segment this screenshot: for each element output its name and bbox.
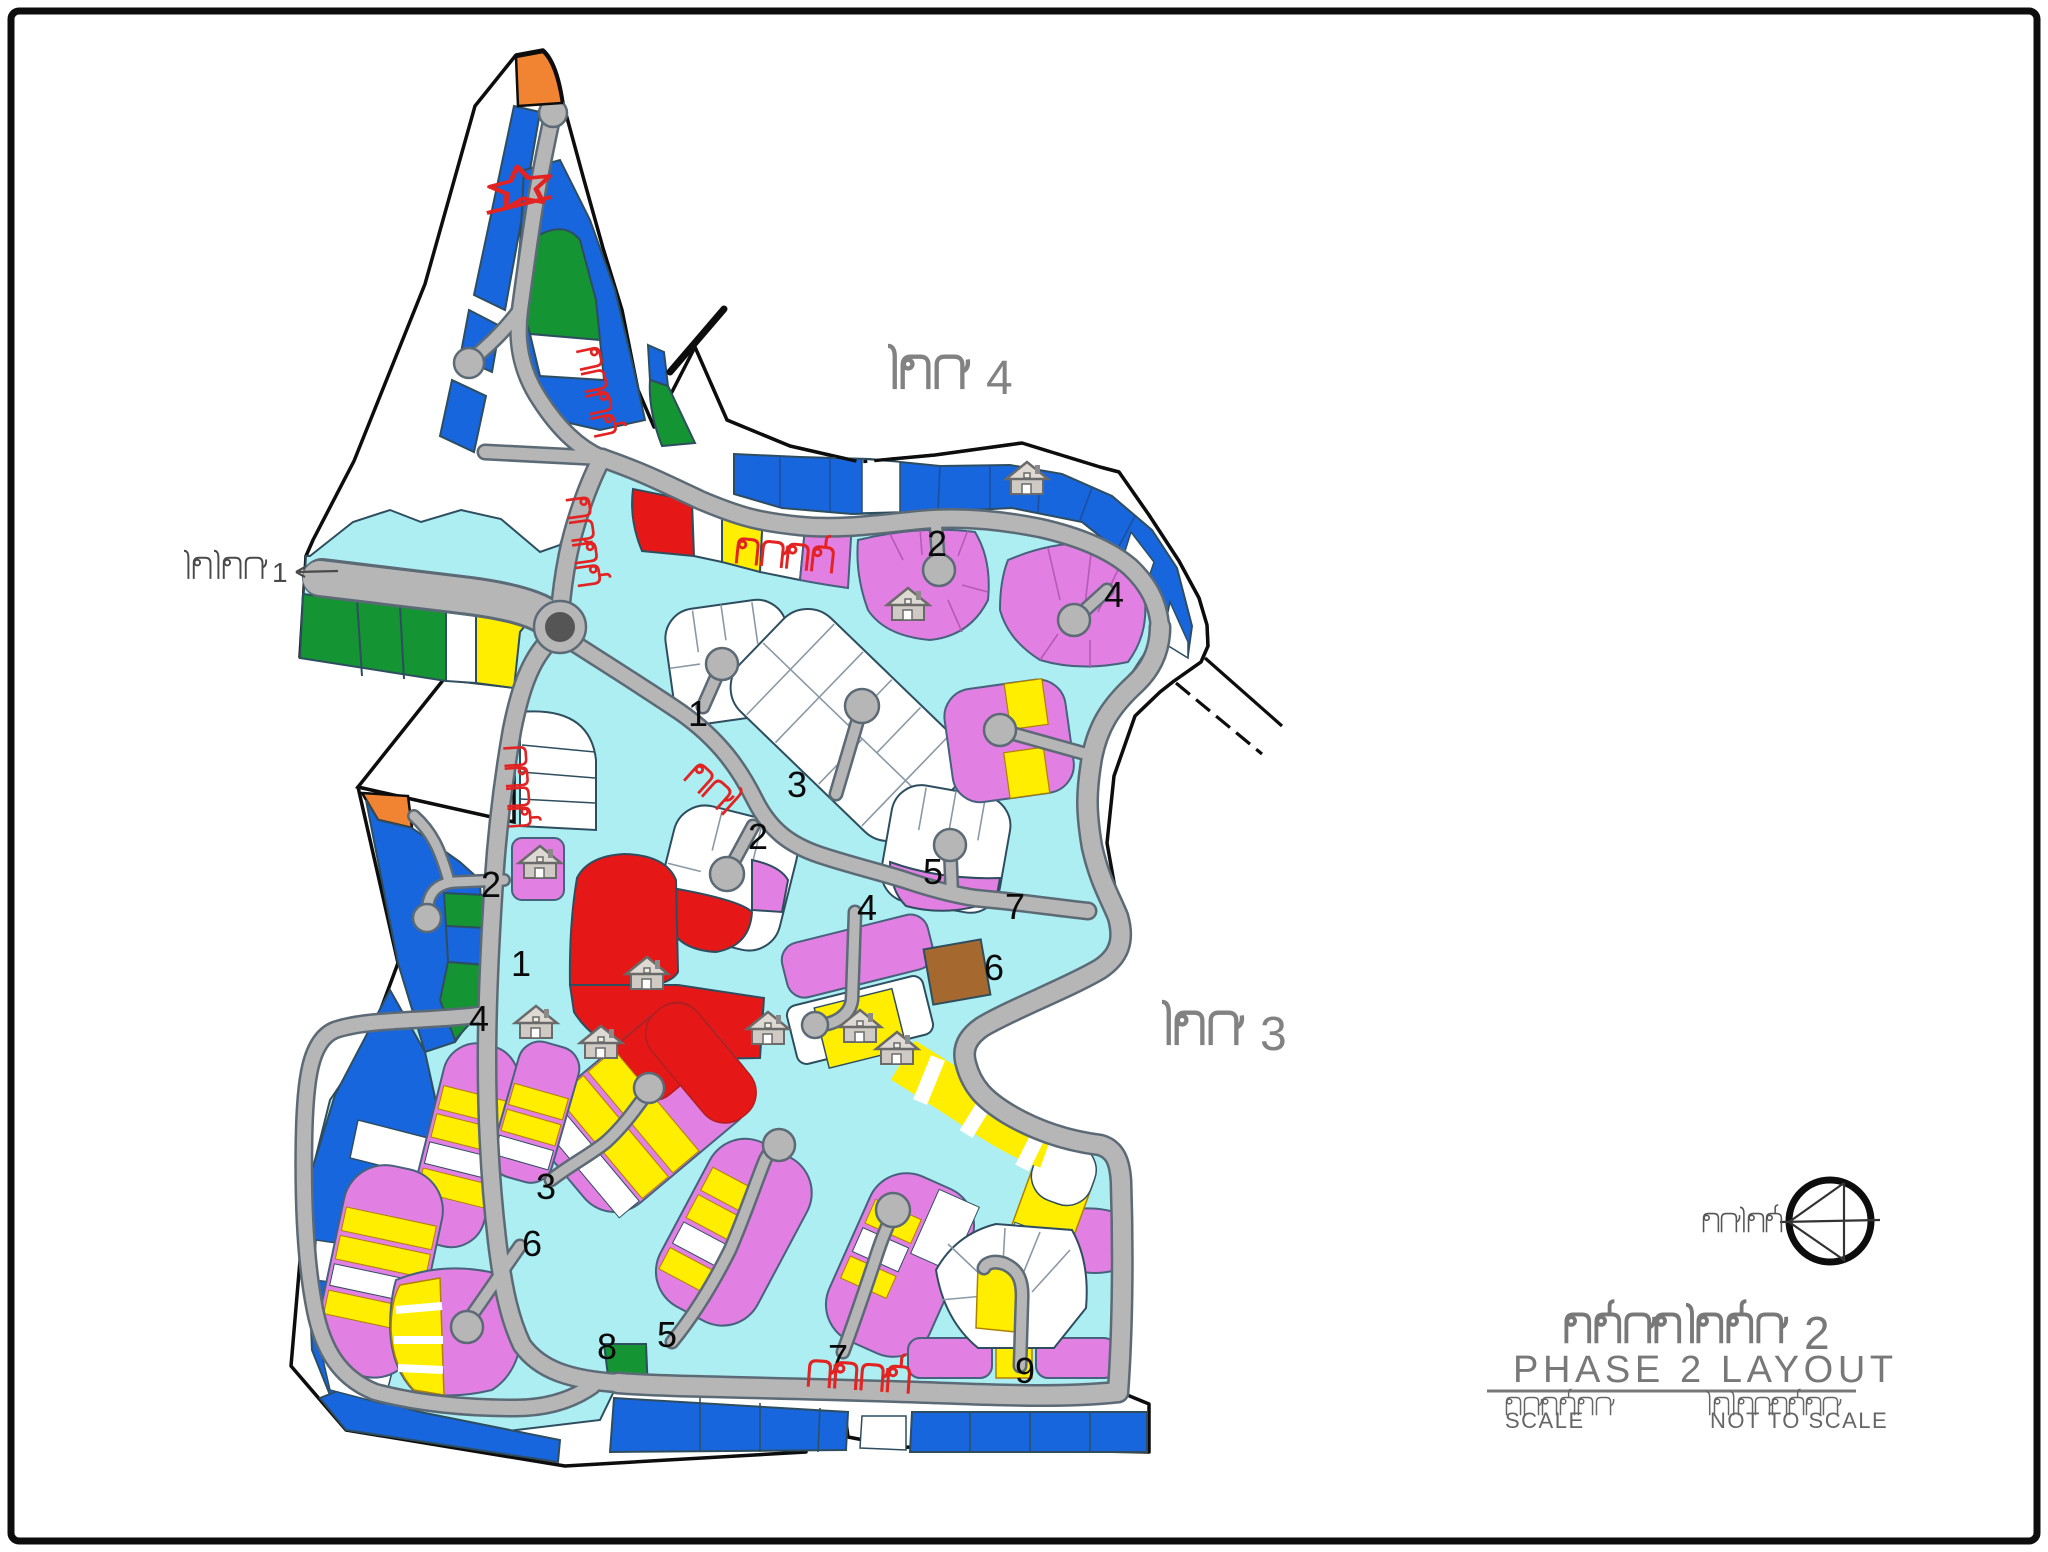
svg-text:7: 7 bbox=[1005, 886, 1025, 927]
svg-text:PHASE 2 LAYOUT: PHASE 2 LAYOUT bbox=[1513, 1349, 1898, 1391]
svg-text:1: 1 bbox=[688, 693, 708, 734]
svg-text:5: 5 bbox=[657, 1314, 677, 1355]
svg-text:6: 6 bbox=[522, 1223, 542, 1264]
svg-text:1: 1 bbox=[511, 943, 531, 984]
svg-text:8: 8 bbox=[597, 1326, 617, 1367]
svg-text:SCALE: SCALE bbox=[1505, 1408, 1585, 1433]
svg-text:6: 6 bbox=[984, 947, 1004, 988]
svg-text:3: 3 bbox=[787, 764, 807, 805]
svg-text:4: 4 bbox=[1104, 574, 1124, 615]
svg-text:3: 3 bbox=[1260, 1008, 1287, 1061]
svg-text:4: 4 bbox=[857, 887, 877, 928]
svg-text:2: 2 bbox=[481, 864, 501, 905]
svg-text:2: 2 bbox=[748, 816, 768, 857]
svg-text:NOT TO SCALE: NOT TO SCALE bbox=[1710, 1408, 1888, 1433]
svg-text:3: 3 bbox=[536, 1166, 556, 1207]
svg-text:1: 1 bbox=[272, 557, 288, 588]
svg-text:9: 9 bbox=[1015, 1350, 1035, 1391]
svg-text:2: 2 bbox=[927, 523, 947, 564]
svg-text:4: 4 bbox=[469, 998, 489, 1039]
svg-text:5: 5 bbox=[923, 851, 943, 892]
svg-text:4: 4 bbox=[986, 352, 1013, 405]
